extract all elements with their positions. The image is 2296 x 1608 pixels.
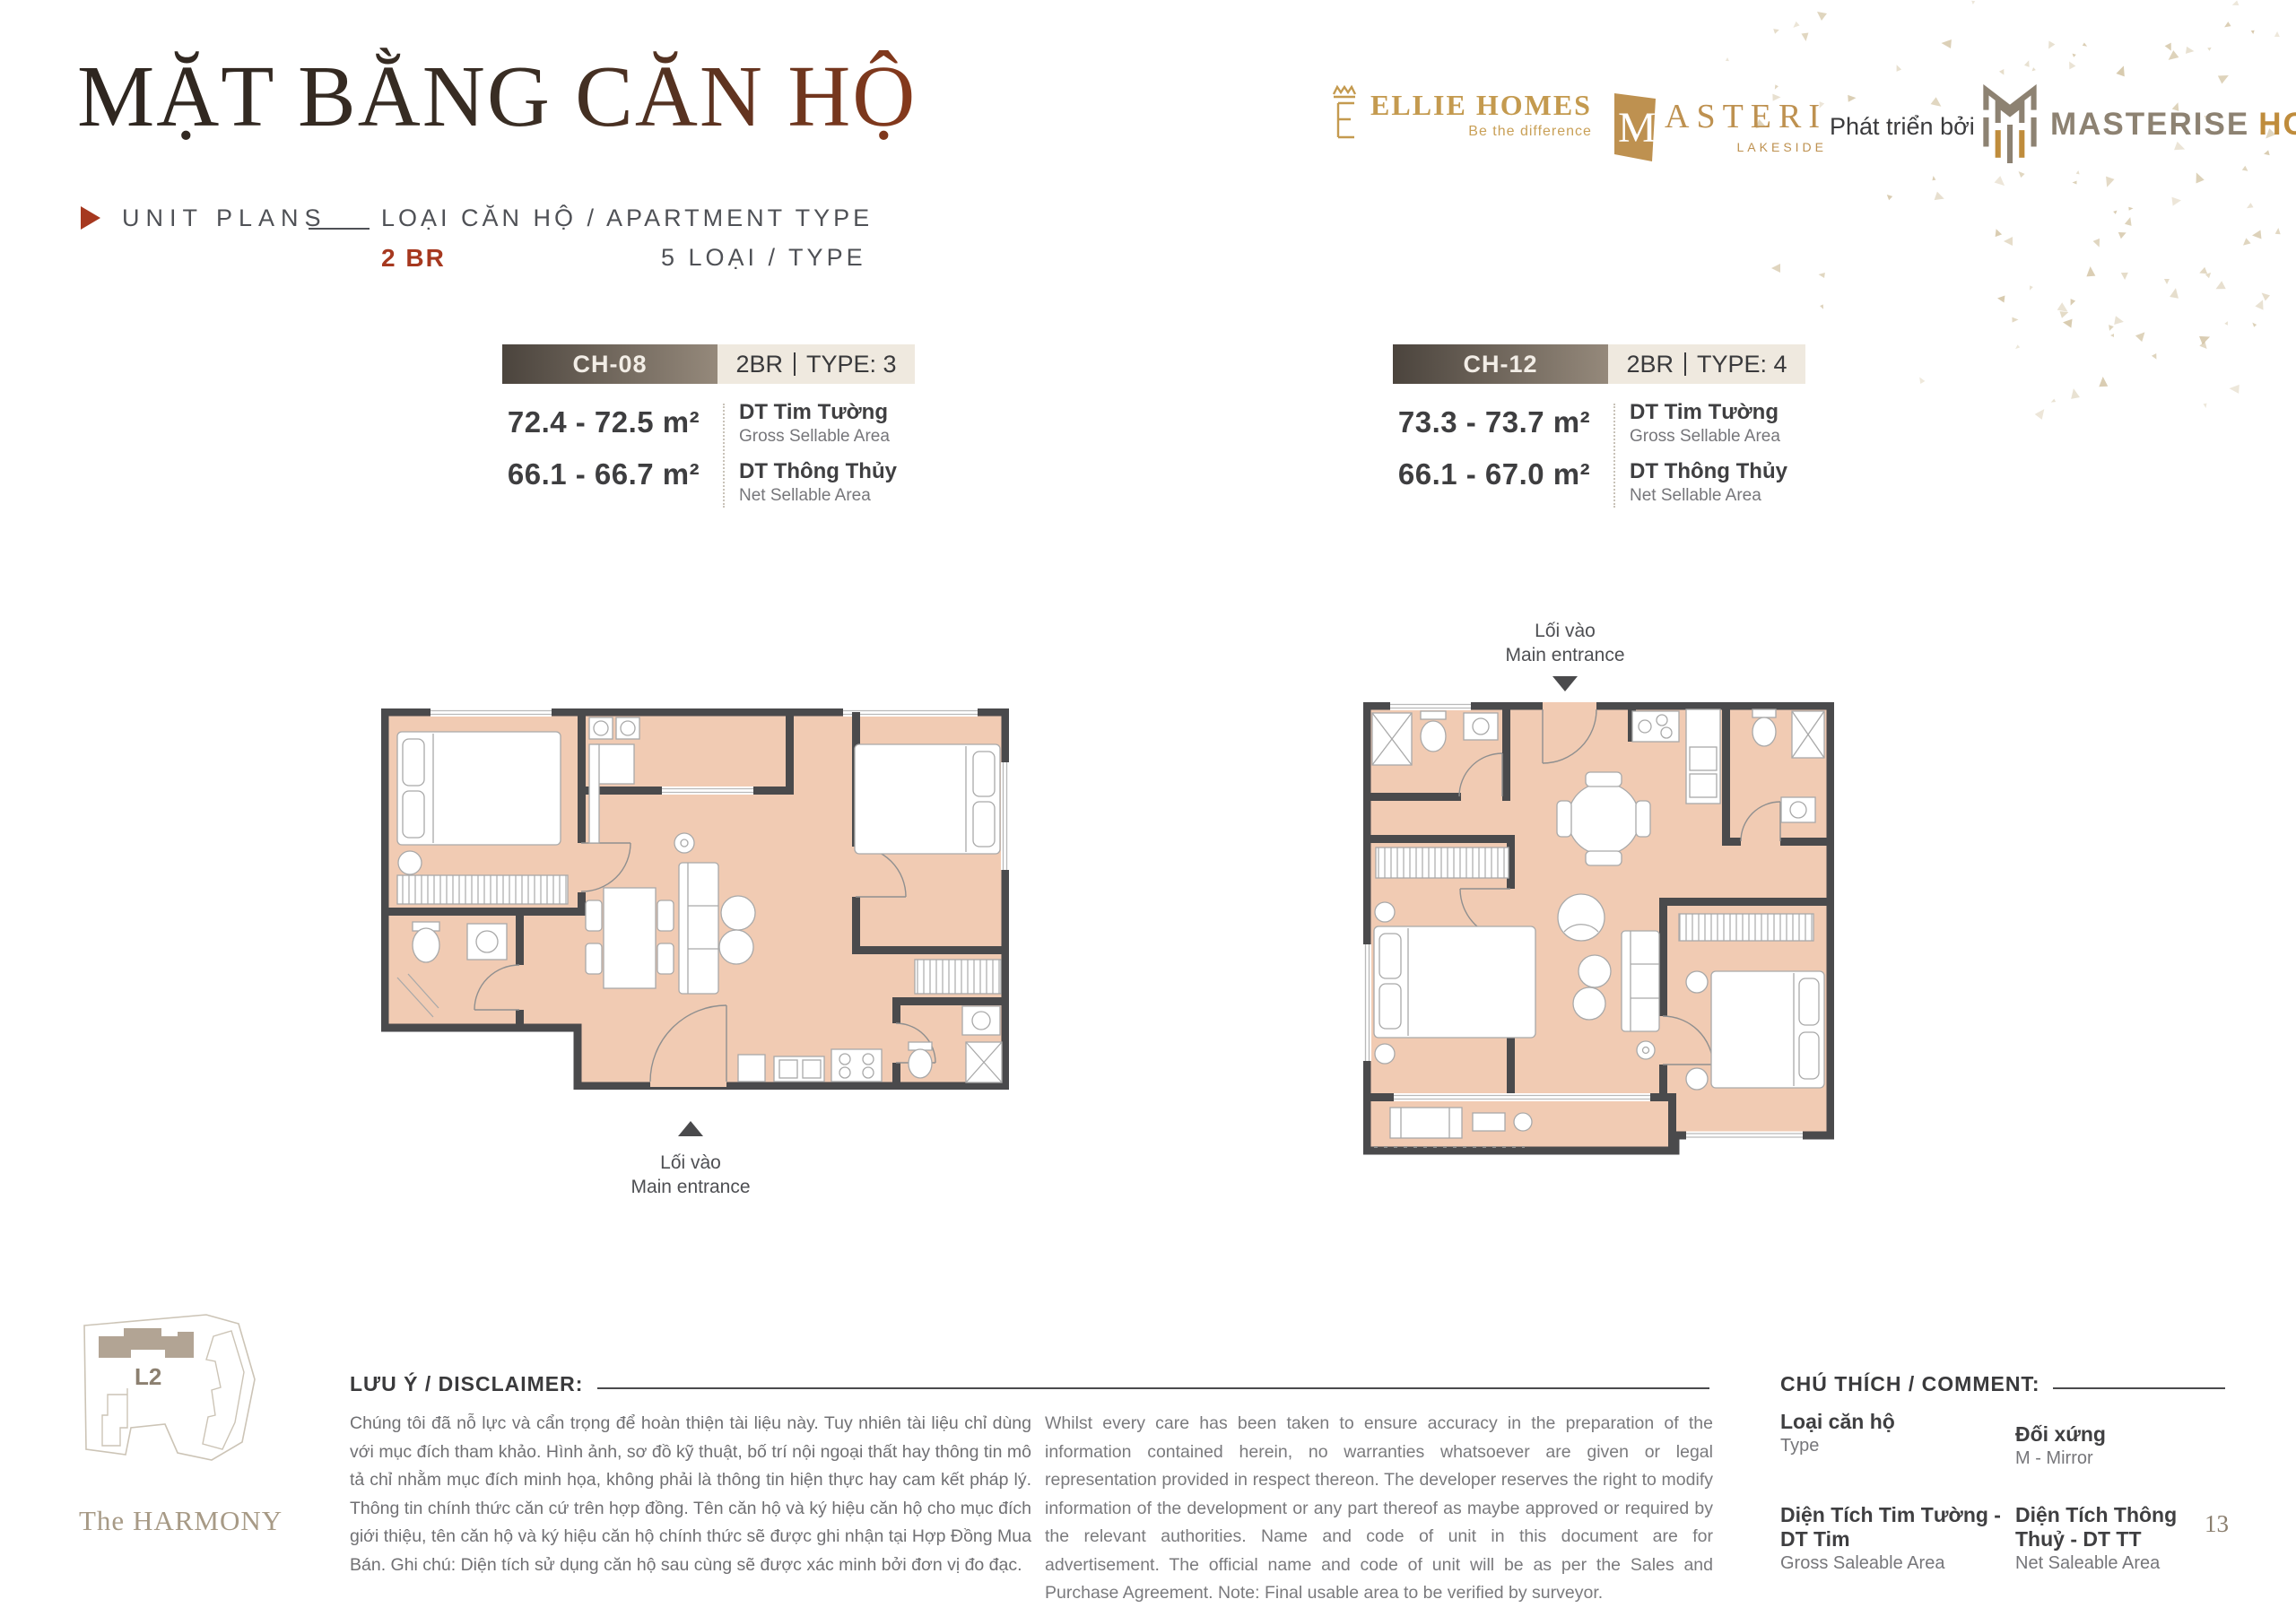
ellie-homes-crown-icon — [1326, 84, 1361, 143]
gross-area-value: 72.4 - 72.5 m² — [491, 405, 716, 439]
masteri-lakeside-logo: M ASTERI LAKESIDE — [1611, 86, 1827, 165]
deco-triangle-icon — [2067, 299, 2074, 307]
deco-triangle-icon — [2076, 170, 2081, 175]
deco-triangle-icon — [2274, 31, 2280, 37]
legend-en: Gross Saleable Area — [1780, 1553, 2015, 1574]
deco-triangle-icon — [2113, 209, 2118, 214]
legend-en: M - Mirror — [2015, 1448, 2229, 1469]
disclaimer-heading: LƯU Ý / DISCLAIMER: — [350, 1372, 1709, 1396]
deco-triangle-icon — [1998, 69, 2005, 76]
deco-triangle-icon — [2114, 316, 2125, 326]
floor-plan-ch12 — [1363, 702, 1834, 1164]
pipe-divider — [794, 352, 796, 376]
deco-triangle-icon — [1818, 272, 1825, 278]
section-divider-line — [309, 228, 370, 230]
entrance-label-ch12: Lối vào Main entrance — [1493, 619, 1637, 668]
deco-triangle-icon — [1814, 8, 1827, 21]
apartment-type-heading: LOẠI CĂN HỘ / APARTMENT TYPE — [381, 204, 873, 232]
entrance-label-vi: Lối vào — [619, 1151, 762, 1175]
pouf — [721, 896, 755, 930]
building-outline-right — [203, 1331, 244, 1449]
project-name: The HARMONY — [79, 1505, 283, 1537]
section-bullet-icon — [81, 206, 100, 230]
deco-triangle-icon — [2050, 398, 2056, 404]
deco-triangle-icon — [1992, 228, 2001, 237]
legend-en: Net Saleable Area — [2015, 1553, 2229, 1574]
deco-triangle-icon — [1771, 264, 1780, 273]
net-label-en: Net Sellable Area — [1630, 486, 1787, 506]
dotted-divider — [1613, 404, 1615, 508]
deco-triangle-icon — [2231, 0, 2239, 7]
sofa — [679, 863, 718, 994]
gross-label-vi: DT Tim Tường — [1630, 400, 1787, 425]
deco-triangle-icon — [1885, 193, 1892, 200]
masteri-subname: LAKESIDE — [1737, 140, 1827, 154]
comment-heading: CHÚ THÍCH / COMMENT: — [1780, 1372, 2225, 1396]
masterise-homes-logo: MASTERISEHOMES — [1980, 84, 2296, 165]
entrance-label-vi: Lối vào — [1493, 619, 1637, 643]
unit-code: CH-12 — [1393, 344, 1608, 384]
deco-triangle-icon — [2093, 238, 2103, 248]
deco-triangle-icon — [2251, 322, 2257, 327]
ellie-homes-logo: ELLIE HOMES Be the difference — [1326, 84, 1592, 143]
wardrobe — [1376, 847, 1509, 878]
developer-prefix-text: Phát triển bởi — [1830, 113, 1975, 141]
deco-triangle-icon — [1931, 98, 1944, 111]
area-labels-ch12: DT Tim Tường Gross Sellable Area DT Thôn… — [1630, 400, 1787, 506]
legend-item: Đối xứng M - Mirror — [2015, 1422, 2229, 1469]
deco-triangle-icon — [2205, 270, 2213, 277]
deco-triangle-icon — [2251, 30, 2256, 35]
deco-triangle-icon — [2071, 52, 2076, 57]
deco-triangle-icon — [1918, 376, 1926, 384]
net-label-en: Net Sellable Area — [739, 486, 897, 506]
deco-triangle-icon — [2164, 279, 2170, 284]
net-label-vi: DT Thông Thủy — [739, 459, 897, 484]
masterise-name: MASTERISE — [2050, 107, 2249, 142]
page-title: MẶT BẰNG CĂN HỘ — [77, 47, 917, 146]
armchair — [1558, 894, 1605, 941]
legend-vi: Diện Tích Tim Tường - DT Tim — [1780, 1503, 2015, 1552]
deco-triangle-icon — [2203, 403, 2207, 408]
deco-triangle-icon — [1932, 175, 1936, 180]
unit-type-number: TYPE: 4 — [1697, 351, 1787, 378]
legend-item: Loại căn hộ Type — [1780, 1410, 2015, 1469]
deco-triangle-icon — [2222, 22, 2231, 30]
legend-vi: Đối xứng — [2015, 1422, 2229, 1447]
deco-triangle-icon — [2121, 273, 2128, 280]
deco-triangle-icon — [2046, 41, 2056, 51]
disclaimer-title: LƯU Ý / DISCLAIMER: — [350, 1372, 583, 1396]
deco-triangle-icon — [2013, 317, 2019, 322]
legend: Loại căn hộ Type Đối xứng M - Mirror Diệ… — [1780, 1410, 2229, 1574]
gross-label-vi: DT Tim Tường — [739, 400, 897, 425]
ellie-homes-name: ELLIE HOMES — [1370, 89, 1592, 122]
deco-triangle-icon — [2170, 287, 2180, 299]
deco-triangle-icon — [2118, 230, 2127, 239]
floor-lamp — [1637, 1041, 1655, 1059]
unit-header-ch08: CH-08 2BR TYPE: 3 — [502, 344, 915, 384]
deco-triangle-icon — [2103, 177, 2115, 189]
legend-vi: Loại căn hộ — [1780, 1410, 2015, 1434]
deco-triangle-icon — [2110, 334, 2114, 337]
deco-triangle-icon — [1791, 22, 1799, 30]
masteri-name: ASTERI — [1665, 97, 1827, 136]
deco-triangle-icon — [2259, 290, 2270, 300]
deco-triangle-icon — [2069, 388, 2080, 400]
type-count: 5 LOẠI / TYPE — [661, 244, 866, 272]
unit-header-ch12: CH-12 2BR TYPE: 4 — [1393, 344, 1805, 384]
deco-triangle-icon — [2057, 302, 2070, 315]
gross-label-en: Gross Sellable Area — [1630, 427, 1787, 447]
floor-plan-ch08 — [381, 708, 1009, 1090]
deco-triangle-icon — [1820, 304, 1825, 309]
deco-triangle-icon — [2217, 72, 2230, 84]
net-label-vi: DT Thông Thủy — [1630, 459, 1787, 484]
deco-triangle-icon — [2165, 43, 2175, 53]
gross-label-en: Gross Sellable Area — [739, 427, 897, 447]
deco-triangle-icon — [1773, 27, 1780, 34]
bedroom-type: 2 BR — [381, 244, 446, 273]
unit-type: 2BR TYPE: 3 — [717, 344, 915, 384]
deco-triangle-icon — [1802, 32, 1810, 41]
dotted-divider — [723, 404, 725, 508]
unit-type-number: TYPE: 3 — [806, 351, 897, 378]
page-number: 13 — [2205, 1510, 2229, 1538]
disclaimer-text-vi: Chúng tôi đã nỗ lực và cẩn trọng để hoàn… — [350, 1410, 1031, 1579]
building-outline-left — [102, 1388, 127, 1446]
legend-en: Type — [1780, 1436, 2015, 1456]
legend-item: Diện Tích Thông Thuỷ - DT TT Net Saleabl… — [2015, 1503, 2229, 1574]
building-l2-footprint — [99, 1328, 194, 1358]
deco-triangle-icon — [2024, 59, 2031, 67]
pipe-divider — [1684, 352, 1686, 376]
deco-triangle-icon — [2252, 230, 2262, 240]
legend-vi: Diện Tích Thông Thuỷ - DT TT — [2015, 1503, 2229, 1552]
deco-triangle-icon — [2059, 309, 2069, 318]
deco-triangle-icon — [2035, 406, 2048, 420]
deco-triangle-icon — [2135, 329, 2147, 342]
deco-triangle-icon — [2016, 169, 2024, 178]
deco-triangle-icon — [2275, 228, 2282, 234]
deco-triangle-icon — [1971, 0, 1975, 4]
deco-triangle-icon — [1894, 64, 1901, 72]
deco-triangle-icon — [2255, 299, 2266, 310]
deco-triangle-icon — [2198, 266, 2207, 275]
entrance-label-ch08: Lối vào Main entrance — [619, 1151, 762, 1200]
deco-triangle-icon — [2014, 344, 2020, 350]
deco-triangle-icon — [2224, 320, 2229, 325]
deco-triangle-icon — [2192, 170, 2205, 183]
masteri-m-icon: M — [1611, 86, 1659, 165]
deco-triangle-icon — [2152, 353, 2159, 361]
balcony-window — [662, 787, 753, 795]
comment-rule — [2053, 1387, 2225, 1389]
deco-triangle-icon — [2246, 203, 2254, 211]
comment-title: CHÚ THÍCH / COMMENT: — [1780, 1372, 2040, 1396]
building-l2-label: L2 — [135, 1363, 161, 1390]
legend-item: Diện Tích Tim Tường - DT Tim Gross Salea… — [1780, 1503, 2015, 1574]
masterise-m-shield-icon — [1980, 84, 2039, 165]
deco-triangle-icon — [2085, 266, 2095, 277]
wardrobe — [397, 875, 568, 904]
deco-triangle-icon — [1848, 94, 1857, 102]
deco-triangle-icon — [2062, 318, 2072, 328]
entrance-opening — [1543, 702, 1596, 710]
sofa — [1622, 931, 1659, 1031]
pouf — [1573, 987, 1605, 1020]
pouf — [719, 930, 753, 964]
unit-code: CH-08 — [502, 344, 717, 384]
deco-triangle-icon — [2107, 325, 2114, 332]
unit-type-br: 2BR — [735, 351, 783, 378]
unit-type-br: 2BR — [1626, 351, 1674, 378]
deco-triangle-icon — [2004, 237, 2013, 246]
deco-triangle-icon — [2213, 281, 2225, 292]
deco-triangle-icon — [1996, 295, 2005, 303]
deco-triangle-icon — [1994, 176, 2007, 189]
deco-triangle-icon — [2028, 286, 2033, 291]
deco-triangle-icon — [2066, 59, 2075, 69]
deco-triangle-icon — [2125, 216, 2134, 226]
deco-triangle-icon — [2099, 376, 2109, 387]
unit-type: 2BR TYPE: 4 — [1608, 344, 1805, 384]
deco-triangle-icon — [2229, 384, 2239, 394]
deco-triangle-icon — [2129, 206, 2134, 210]
deco-triangle-icon — [2199, 342, 2209, 352]
entrance-label-en: Main entrance — [619, 1175, 762, 1199]
masterise-homes: HOMES — [2258, 107, 2296, 142]
net-area-value: 66.1 - 67.0 m² — [1382, 457, 1606, 491]
disclaimer-text-en: Whilst every care has been taken to ensu… — [1045, 1410, 1713, 1608]
deco-triangle-icon — [2073, 180, 2077, 184]
deco-triangle-icon — [2083, 42, 2088, 48]
deco-triangle-icon — [1941, 39, 1952, 48]
wardrobe — [915, 960, 1001, 994]
deco-triangle-icon — [2116, 64, 2127, 76]
deco-triangle-icon — [2172, 196, 2182, 206]
section-label: UNIT PLANS — [122, 204, 327, 232]
entrance-arrow-ch12 — [1552, 676, 1578, 691]
deco-triangle-icon — [2031, 67, 2037, 73]
pouf — [1578, 955, 1611, 987]
area-labels-ch08: DT Tim Tường Gross Sellable Area DT Thôn… — [739, 400, 897, 506]
entrance-opening — [650, 1077, 726, 1087]
bed-second — [855, 744, 1000, 854]
wardrobe — [1679, 914, 1813, 941]
closet — [966, 1042, 1002, 1082]
deco-triangle-icon — [2241, 238, 2251, 248]
disclaimer-rule — [597, 1387, 1709, 1389]
entrance-arrow-ch08 — [678, 1121, 703, 1136]
entrance-label-en: Main entrance — [1493, 643, 1637, 667]
gross-area-value: 73.3 - 73.7 m² — [1382, 405, 1606, 439]
deco-triangle-icon — [2242, 166, 2249, 173]
ellie-homes-tagline: Be the difference — [1468, 124, 1592, 140]
tv-console — [589, 744, 599, 843]
deco-triangle-icon — [2199, 332, 2212, 343]
deco-triangle-icon — [1935, 192, 1946, 204]
deco-triangle-icon — [1726, 57, 1729, 61]
svg-text:M: M — [1618, 104, 1657, 152]
deco-triangle-icon — [2186, 47, 2195, 55]
site-key-plan: L2 — [72, 1309, 287, 1489]
deco-triangle-icon — [2207, 46, 2213, 51]
net-area-value: 66.1 - 66.7 m² — [491, 457, 716, 491]
deco-triangle-icon — [2165, 50, 2179, 64]
ceiling-lamp — [674, 833, 694, 853]
